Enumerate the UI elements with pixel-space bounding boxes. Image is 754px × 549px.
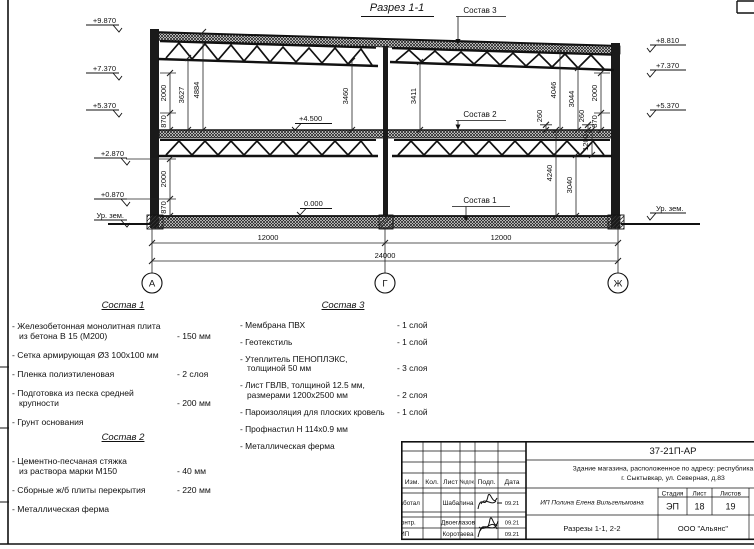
axis-label-a: А [149, 279, 156, 290]
dim-right-1200: 1200 [581, 134, 590, 151]
row-name-korotaeva: Коротаева [442, 531, 474, 538]
composition-block-3: Состав 3 - Мембрана ПВХ- 1 слой - Геотек… [240, 301, 446, 459]
sheet-label: Лист [693, 491, 707, 498]
footing-middle [379, 215, 393, 229]
signature-2 [478, 518, 498, 537]
item-name: - Металлическая ферма [12, 504, 177, 514]
list-item: - Сетка армирующая Ø3 100х100 мм [12, 350, 234, 360]
level-left-5370: +5.370 [93, 101, 116, 110]
composition-2-title: Состав 2 [12, 433, 234, 443]
col-ndok: №док. [460, 480, 476, 486]
bottom-dimension-texts: 12000 12000 24000 [258, 233, 512, 260]
list-item: - Сборные ж/б плиты перекрытия- 220 мм [12, 485, 234, 495]
dim-left-3627: 3627 [177, 87, 186, 104]
item-name: - Железобетонная монолитная плита из бет… [12, 321, 177, 341]
item-name: - Металлическая ферма [240, 442, 397, 452]
signature-1 [478, 494, 502, 509]
dim-right-3044: 3044 [567, 91, 576, 108]
dim-left-2000a: 2000 [159, 85, 168, 102]
row-name-shabalina: Шабалина [443, 499, 474, 507]
level-left-0870: +0.870 [101, 190, 124, 199]
col-izm: Изм. [405, 479, 420, 486]
list-item: - Профнастил Н 114х0.9 мм [240, 425, 446, 435]
dim-right-3040: 3040 [565, 177, 574, 194]
item-qty: - 40 мм [177, 466, 234, 476]
sheet-title: Разрезы 1-1, 2-2 [563, 524, 620, 533]
elevation-texts-right: +8.810 +7.370 +5.370 Ур. зем. [656, 36, 684, 213]
drawing-sheet: Разрез 1-1 [0, 0, 754, 549]
title-block: Изм. Кол. Лист №док. Подп. Дата Разработ… [401, 441, 754, 543]
dim-bottom-right: 12000 [491, 233, 512, 242]
dim-mid-3460: 3460 [341, 88, 350, 105]
dim-left-870b: 870 [159, 201, 168, 214]
project-line1: Здание магазина, расположенное по адресу… [573, 465, 754, 473]
item-name: - Пленка полиэтиленовая [12, 369, 177, 379]
item-name: - Лист ГВЛВ, толщиной 12.5 мм, размерами… [240, 381, 397, 400]
client-name: ИП Полина Елена Вильгельмовна [540, 500, 644, 507]
item-name: - Сетка армирующая Ø3 100х100 мм [12, 350, 177, 360]
item-name: - Геотекстиль [240, 338, 397, 348]
dim-bottom-left: 12000 [258, 233, 279, 242]
list-item: - Лист ГВЛВ, толщиной 12.5 мм, размерами… [240, 381, 446, 400]
item-name: - Подготовка из песка средней крупности [12, 388, 177, 408]
item-qty: - 2 слоя [177, 369, 234, 379]
corner-box [737, 1, 754, 13]
row-role-razrabotal: Разработал [401, 500, 420, 507]
row-date-3: 09.21 [505, 532, 520, 538]
item-name: - Цементно-песчаная стяжка из раствора м… [12, 456, 177, 476]
stage-value: ЭП [666, 502, 679, 512]
building-structure [108, 29, 700, 229]
callout-sostav2: Состав 2 [463, 110, 497, 119]
composition-1-title: Состав 1 [12, 301, 234, 311]
item-name: - Мембрана ПВХ [240, 321, 397, 331]
composition-block-2: Состав 2 - Цементно-песчаная стяжка из р… [12, 433, 234, 523]
list-item: - Пароизоляция для плоских кровель- 1 сл… [240, 408, 446, 418]
row-role-gip: ГИП [401, 531, 409, 538]
axis-bubbles: А Г Ж [142, 273, 628, 293]
row-role-nkontr: Н. контр. [401, 520, 416, 527]
axis-label-g: Г [382, 279, 387, 290]
item-name: - Пароизоляция для плоских кровель [240, 408, 397, 418]
level-mid-floor: +4.500 [299, 114, 322, 123]
company-name: ООО "Альянс" [678, 524, 728, 533]
item-qty: - 1 слой [397, 321, 446, 331]
list-item: - Утеплитель ПЕНОПЛЭКС, толщиной 50 мм- … [240, 355, 446, 374]
sheets-value: 19 [725, 502, 735, 512]
left-wall [150, 29, 159, 228]
item-qty: - 150 мм [177, 331, 234, 341]
dim-right-4046: 4046 [549, 82, 558, 99]
sheets-label: Листов [720, 491, 741, 498]
list-item: - Геотекстиль- 1 слой [240, 338, 446, 348]
dim-bottom-total: 24000 [375, 251, 396, 260]
list-item: - Грунт основания [12, 417, 234, 427]
project-line2: г. Сыктывкар, ул. Северная, д.83 [621, 475, 725, 482]
level-left-9870: +9.870 [93, 16, 116, 25]
dim-right-260a: 260 [535, 110, 544, 123]
doc-number: 37-21П-АР [650, 446, 697, 457]
dim-left-2000b: 2000 [159, 171, 168, 188]
level-right-7370: +7.370 [656, 61, 679, 70]
section-title-text: Разрез 1-1 [370, 2, 425, 14]
item-qty: - 1 слой [397, 408, 446, 418]
dim-right-260b: 260 [577, 110, 586, 123]
dim-left-870a: 870 [159, 115, 168, 128]
col-data: Дата [504, 479, 519, 486]
callout-sostav3: Состав 3 [463, 6, 497, 15]
sheet-value: 18 [694, 502, 704, 512]
level-right-8810: +8.810 [656, 36, 679, 45]
col-kol: Кол. [425, 479, 439, 486]
dim-right-2000: 2000 [590, 85, 599, 102]
floor-truss-right [392, 140, 612, 156]
item-name: - Грунт основания [12, 417, 177, 427]
floor-truss-left [158, 140, 378, 156]
list-item: - Металлическая ферма [12, 504, 234, 514]
dim-mid-3411: 3411 [409, 88, 418, 104]
item-qty: - 3 слоя [397, 364, 446, 374]
level-ground-floor: 0.000 [304, 199, 323, 208]
dim-right-4240: 4240 [545, 165, 554, 182]
stage-label: Стадия [662, 491, 684, 498]
dim-left-4884: 4884 [192, 82, 201, 99]
callout-sostav1: Состав 1 [463, 196, 497, 205]
vertical-dimensions [126, 29, 610, 219]
composition-block-1: Состав 1 - Железобетонная монолитная пли… [12, 301, 234, 436]
list-item: - Подготовка из песка средней крупности-… [12, 388, 234, 408]
list-item: - Пленка полиэтиленовая- 2 слоя [12, 369, 234, 379]
axis-label-zh: Ж [614, 279, 623, 290]
elevation-texts-left: +9.870 +7.370 +5.370 +2.870 +0.870 Ур. з… [93, 16, 124, 220]
row-date-2: 09.21 [505, 521, 520, 527]
row-name-dvoeglazov: Двоеглазов [441, 520, 476, 527]
list-item: - Мембрана ПВХ- 1 слой [240, 321, 446, 331]
item-name: - Профнастил Н 114х0.9 мм [240, 425, 397, 435]
level-right-ground: Ур. зем. [656, 204, 684, 213]
middle-column [383, 46, 388, 216]
item-qty: - 220 мм [177, 485, 234, 495]
level-left-7370: +7.370 [93, 64, 116, 73]
level-right-5370: +5.370 [656, 101, 679, 110]
composition-3-title: Состав 3 [240, 301, 446, 311]
footing-left [147, 215, 163, 229]
elevation-marks-right [647, 45, 686, 220]
row-date-1: 09.21 [505, 501, 520, 507]
item-qty: - 2 слоя [397, 391, 446, 401]
section-title: Разрез 1-1 [361, 2, 434, 17]
item-qty: - 200 мм [177, 398, 234, 408]
list-item: - Железобетонная монолитная плита из бет… [12, 321, 234, 341]
footing-right [608, 215, 624, 229]
item-name: - Утеплитель ПЕНОПЛЭКС, толщиной 50 мм [240, 355, 397, 374]
dim-right-870: 870 [590, 115, 599, 128]
level-left-ground: Ур. зем. [96, 211, 124, 220]
item-name: - Сборные ж/б плиты перекрытия [12, 485, 177, 495]
item-qty: - 1 слой [397, 338, 446, 348]
list-item: - Цементно-песчаная стяжка из раствора м… [12, 456, 234, 476]
level-left-2870: +2.870 [101, 149, 124, 158]
col-podp: Подп. [477, 479, 495, 486]
title-block-grid: Изм. Кол. Лист №док. Подп. Дата Разработ… [401, 441, 754, 541]
col-list: Лист [443, 479, 458, 486]
